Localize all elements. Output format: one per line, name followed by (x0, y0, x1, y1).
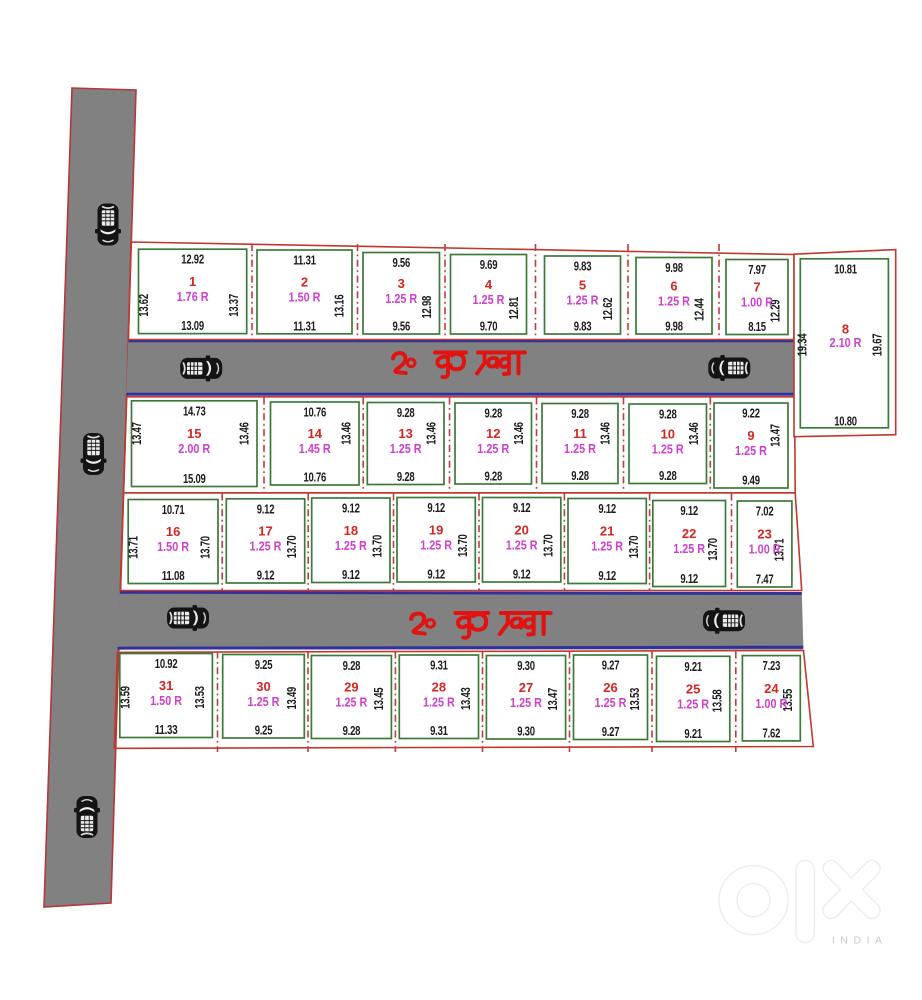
svg-text:9.31: 9.31 (430, 724, 448, 738)
svg-text:11.31: 11.31 (293, 254, 316, 268)
svg-text:19.34: 19.34 (796, 333, 810, 356)
svg-text:13.47: 13.47 (769, 424, 783, 447)
svg-text:9.28: 9.28 (397, 470, 415, 484)
svg-text:1.25 R: 1.25 R (735, 443, 767, 458)
svg-text:1.25 R: 1.25 R (477, 441, 509, 456)
svg-text:12: 12 (486, 426, 500, 441)
svg-text:1.50 R: 1.50 R (289, 289, 321, 304)
svg-text:1.76 R: 1.76 R (177, 289, 209, 304)
svg-text:9.56: 9.56 (392, 256, 410, 270)
svg-text:9.12: 9.12 (598, 569, 616, 583)
svg-text:9.28: 9.28 (484, 407, 502, 421)
svg-text:14.73: 14.73 (183, 404, 206, 418)
svg-text:7.23: 7.23 (763, 659, 781, 673)
svg-text:1.25 R: 1.25 R (658, 293, 690, 308)
svg-text:13.46: 13.46 (599, 422, 613, 445)
svg-text:11.33: 11.33 (155, 723, 178, 737)
svg-text:10.71: 10.71 (162, 503, 185, 517)
svg-text:13.59: 13.59 (118, 686, 132, 709)
svg-text:13.45: 13.45 (372, 687, 386, 710)
svg-text:18: 18 (344, 523, 358, 538)
svg-text:10.76: 10.76 (303, 406, 326, 420)
svg-text:9.27: 9.27 (602, 659, 620, 673)
svg-text:1.25 R: 1.25 R (423, 694, 455, 709)
svg-text:1.25 R: 1.25 R (564, 441, 596, 456)
svg-text:1.45 R: 1.45 R (299, 441, 331, 456)
svg-text:1.25 R: 1.25 R (595, 695, 627, 710)
svg-text:9.30: 9.30 (517, 725, 535, 739)
svg-text:13.47: 13.47 (546, 688, 560, 711)
svg-text:13.16: 13.16 (333, 294, 347, 317)
svg-text:9: 9 (747, 428, 754, 443)
svg-text:10.76: 10.76 (303, 471, 326, 485)
svg-text:13.70: 13.70 (627, 535, 641, 558)
svg-text:25: 25 (686, 681, 700, 696)
svg-text:20: 20 (514, 522, 528, 537)
svg-text:13.46: 13.46 (340, 422, 354, 445)
svg-text:12.44: 12.44 (693, 298, 707, 321)
svg-text:30: 30 (256, 679, 270, 694)
svg-text:1.25 R: 1.25 R (591, 539, 623, 554)
svg-text:12.92: 12.92 (181, 253, 204, 267)
svg-text:9.83: 9.83 (574, 260, 592, 274)
svg-text:1.25 R: 1.25 R (677, 696, 709, 711)
svg-text:1.25 R: 1.25 R (250, 538, 282, 553)
svg-text:8.15: 8.15 (748, 320, 766, 334)
svg-text:9.25: 9.25 (255, 724, 273, 738)
svg-text:2: 2 (301, 274, 308, 289)
svg-text:19.67: 19.67 (871, 333, 885, 356)
svg-text:13.46: 13.46 (425, 422, 439, 445)
svg-text:13.70: 13.70 (285, 535, 299, 558)
svg-text:9.28: 9.28 (343, 659, 361, 673)
svg-text:13.43: 13.43 (459, 687, 473, 710)
svg-text:13: 13 (398, 426, 412, 441)
svg-text:9.12: 9.12 (680, 504, 698, 518)
svg-text:1.00 R: 1.00 R (741, 295, 773, 310)
svg-text:17: 17 (258, 523, 272, 538)
svg-text:28: 28 (432, 679, 446, 694)
svg-text:23: 23 (757, 527, 771, 542)
svg-text:9.12: 9.12 (342, 568, 360, 582)
svg-text:4: 4 (485, 277, 493, 292)
svg-text:14: 14 (308, 426, 323, 441)
svg-text:19: 19 (429, 522, 443, 537)
svg-text:9.12: 9.12 (680, 572, 698, 586)
svg-text:13.71: 13.71 (127, 536, 141, 559)
svg-text:3: 3 (398, 276, 405, 291)
svg-text:12.98: 12.98 (420, 296, 434, 319)
svg-text:26: 26 (603, 680, 617, 695)
svg-text:5: 5 (579, 278, 586, 293)
svg-text:15.09: 15.09 (183, 472, 206, 486)
svg-text:9.28: 9.28 (571, 407, 589, 421)
svg-text:1.00 R: 1.00 R (755, 696, 787, 711)
svg-text:9.21: 9.21 (684, 660, 702, 674)
svg-text:1.25 R: 1.25 R (652, 441, 684, 456)
svg-text:6: 6 (670, 278, 677, 293)
svg-text:1.00 R: 1.00 R (749, 542, 781, 557)
svg-text:9.31: 9.31 (430, 659, 448, 673)
svg-text:13.70: 13.70 (199, 536, 213, 559)
svg-text:1.25 R: 1.25 R (473, 292, 505, 307)
svg-text:13.47: 13.47 (130, 422, 144, 445)
svg-text:1.25 R: 1.25 R (510, 695, 542, 710)
svg-text:13.70: 13.70 (706, 538, 720, 561)
svg-text:13.53: 13.53 (193, 686, 207, 709)
svg-text:1.25 R: 1.25 R (335, 695, 367, 710)
svg-text:11.31: 11.31 (293, 319, 316, 333)
svg-text:1.25 R: 1.25 R (335, 538, 367, 553)
svg-text:9.49: 9.49 (742, 474, 760, 488)
svg-text:11.08: 11.08 (162, 569, 185, 583)
svg-text:16: 16 (166, 524, 180, 539)
svg-text:9.12: 9.12 (427, 501, 445, 515)
svg-text:27: 27 (519, 680, 533, 695)
svg-text:9.12: 9.12 (598, 502, 616, 516)
svg-text:12.81: 12.81 (507, 297, 521, 320)
svg-text:9.28: 9.28 (571, 469, 589, 483)
svg-text:9.28: 9.28 (484, 470, 502, 484)
svg-text:15: 15 (187, 426, 201, 441)
svg-text:1.50 R: 1.50 R (157, 539, 189, 554)
svg-text:1.25 R: 1.25 R (673, 541, 705, 556)
svg-text:21: 21 (600, 524, 614, 539)
svg-text:10.81: 10.81 (834, 263, 857, 277)
svg-text:9.56: 9.56 (392, 320, 410, 334)
svg-text:INDIA: INDIA (832, 935, 888, 947)
svg-text:13.70: 13.70 (371, 535, 385, 558)
svg-text:13.49: 13.49 (285, 687, 299, 710)
svg-text:24: 24 (764, 681, 779, 696)
svg-text:7.02: 7.02 (756, 505, 774, 519)
svg-text:1.25 R: 1.25 R (506, 537, 538, 552)
svg-text:22: 22 (682, 526, 696, 541)
svg-text:10.92: 10.92 (155, 657, 178, 671)
svg-text:1.25 R: 1.25 R (385, 291, 417, 306)
svg-text:2.10 R: 2.10 R (830, 335, 862, 350)
svg-text:9.98: 9.98 (665, 261, 683, 275)
svg-text:13.46: 13.46 (687, 422, 701, 445)
svg-text:9.28: 9.28 (659, 408, 677, 422)
svg-text:13.46: 13.46 (238, 422, 252, 445)
svg-text:13.62: 13.62 (137, 294, 151, 317)
svg-text:7.62: 7.62 (763, 726, 781, 740)
svg-text:1.25 R: 1.25 R (248, 694, 280, 709)
svg-text:11: 11 (573, 426, 587, 441)
svg-text:29: 29 (344, 680, 358, 695)
svg-text:9.27: 9.27 (602, 725, 620, 739)
svg-text:1: 1 (189, 274, 196, 289)
svg-text:9.28: 9.28 (659, 469, 677, 483)
svg-text:7.97: 7.97 (748, 263, 766, 277)
svg-text:1.25 R: 1.25 R (390, 441, 422, 456)
svg-text:9.12: 9.12 (342, 502, 360, 516)
svg-text:9.12: 9.12 (513, 568, 531, 582)
svg-text:9.98: 9.98 (665, 320, 683, 334)
svg-text:13.58: 13.58 (710, 689, 724, 712)
svg-text:9.70: 9.70 (480, 320, 498, 334)
svg-text:13.53: 13.53 (628, 688, 642, 711)
svg-text:13.09: 13.09 (181, 319, 204, 333)
svg-text:9.69: 9.69 (480, 258, 498, 272)
svg-text:13.70: 13.70 (541, 534, 555, 557)
svg-text:7: 7 (753, 280, 760, 295)
svg-text:10.80: 10.80 (834, 415, 857, 429)
svg-text:9.12: 9.12 (427, 568, 445, 582)
svg-text:7.47: 7.47 (756, 573, 774, 587)
svg-text:9.30: 9.30 (517, 659, 535, 673)
svg-text:9.12: 9.12 (257, 569, 275, 583)
svg-text:9.25: 9.25 (255, 658, 273, 672)
svg-text:9.21: 9.21 (684, 727, 702, 741)
svg-text:9.22: 9.22 (742, 407, 760, 421)
svg-text:1.50 R: 1.50 R (150, 693, 182, 708)
svg-text:31: 31 (159, 678, 173, 693)
svg-text:10: 10 (661, 426, 675, 441)
svg-text:2.00 R: 2.00 R (178, 441, 210, 456)
svg-text:12.62: 12.62 (601, 297, 615, 320)
svg-text:9.28: 9.28 (397, 406, 415, 420)
svg-text:1.25 R: 1.25 R (420, 537, 452, 552)
svg-text:9.12: 9.12 (513, 501, 531, 515)
svg-text:13.46: 13.46 (512, 422, 526, 445)
svg-text:9.83: 9.83 (574, 320, 592, 334)
svg-text:1.25 R: 1.25 R (567, 293, 599, 308)
svg-text:9.12: 9.12 (257, 502, 275, 516)
svg-text:13.37: 13.37 (227, 294, 241, 317)
svg-text:9.28: 9.28 (343, 724, 361, 738)
svg-text:13.70: 13.70 (456, 534, 470, 557)
